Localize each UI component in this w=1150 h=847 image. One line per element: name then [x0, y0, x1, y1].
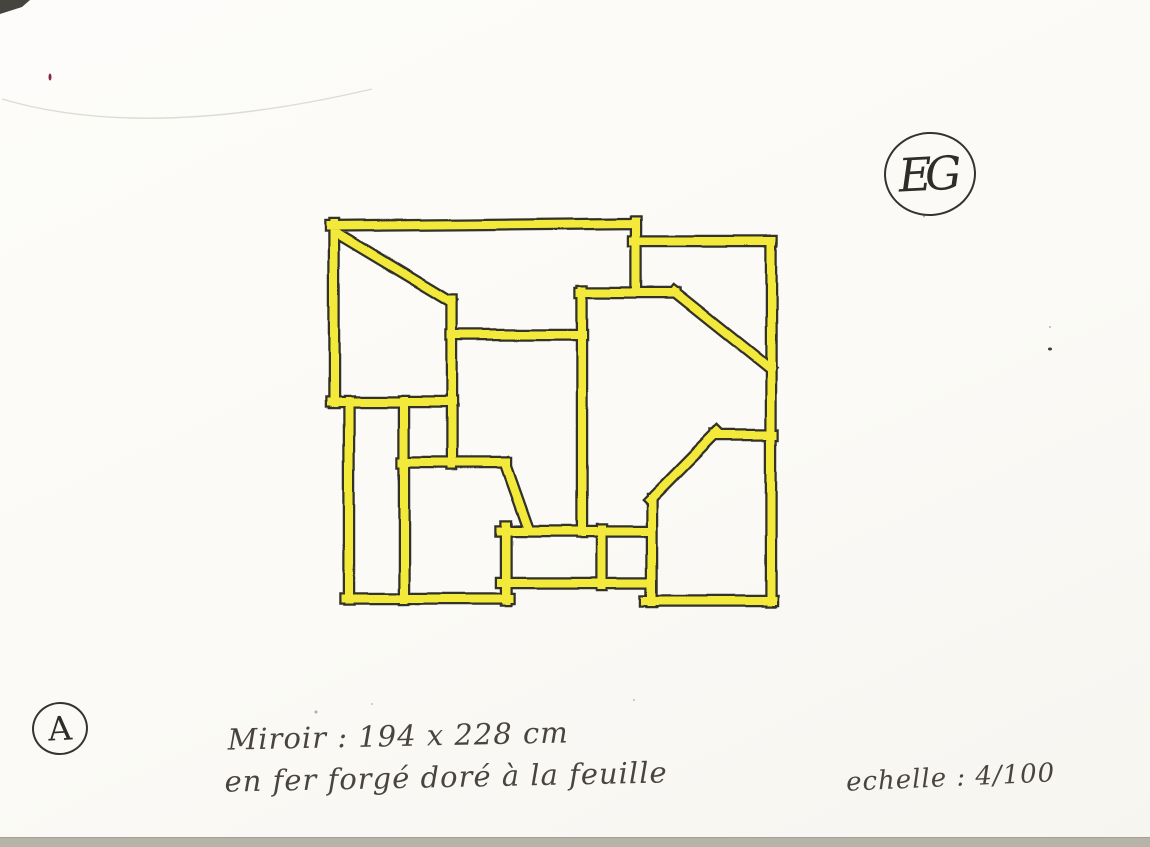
scan-corner-artifact [0, 0, 30, 14]
scanned-sketch-page: EG A Miroir : 194 x 228 cm en fer forgé … [0, 0, 1150, 847]
designer-monogram-initials: EG [897, 146, 956, 203]
mirror-frame-skeleton [330, 221, 773, 602]
paper-speck [315, 711, 318, 714]
scan-edge-strip [0, 837, 1150, 847]
frame-yellow-highlight [330, 221, 773, 602]
paper-speck [1048, 348, 1052, 351]
sheet-letter: A [47, 708, 73, 748]
paper-speck [49, 74, 52, 81]
caption-block: Miroir : 194 x 228 cm en fer forgé doré … [227, 709, 668, 802]
paper-speck [633, 699, 635, 701]
frame-pencil-outline [330, 221, 773, 602]
paper-crease-line [2, 89, 372, 118]
paper-speck [1049, 326, 1051, 328]
paper-speck [371, 703, 373, 705]
